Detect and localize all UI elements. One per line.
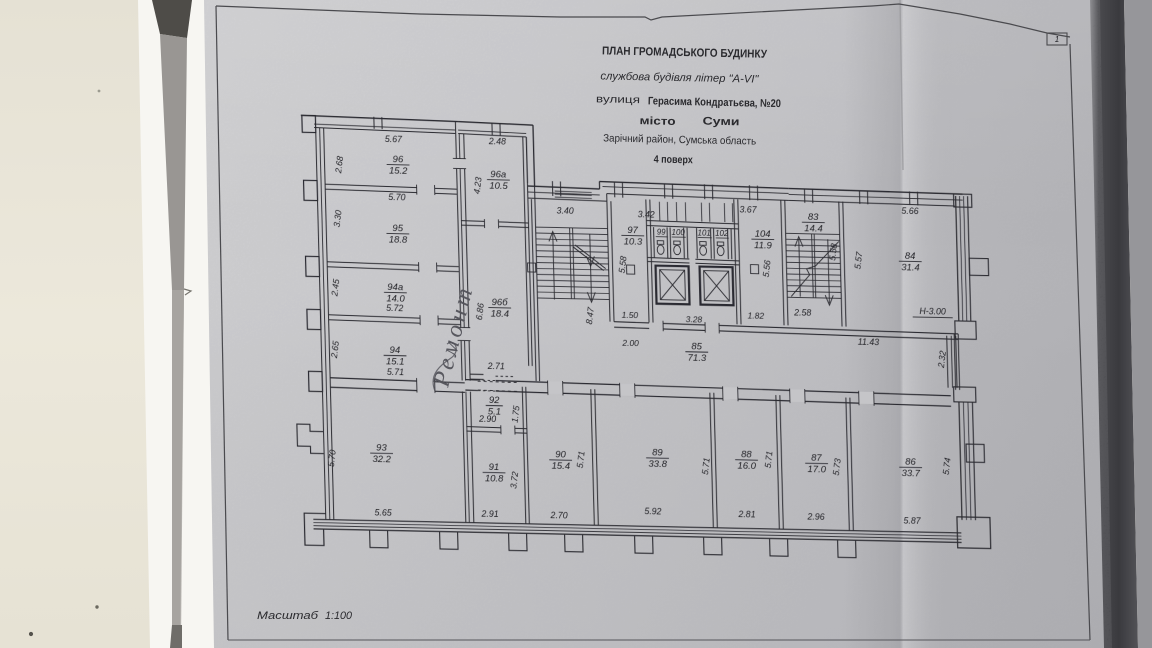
svg-text:Масштаб: Масштаб <box>257 610 319 622</box>
svg-text:вулиця: вулиця <box>596 93 640 106</box>
svg-text:5.56: 5.56 <box>761 259 773 278</box>
svg-text:2.70: 2.70 <box>549 510 567 520</box>
svg-text:90: 90 <box>555 449 567 460</box>
svg-text:2.32: 2.32 <box>936 350 948 370</box>
svg-text:91: 91 <box>488 462 499 473</box>
svg-text:2.45: 2.45 <box>329 278 341 298</box>
svg-text:1.75: 1.75 <box>510 405 522 424</box>
svg-text:96а: 96а <box>490 169 506 180</box>
svg-text:96: 96 <box>393 154 405 165</box>
svg-text:2.00: 2.00 <box>621 338 639 348</box>
svg-text:2.90: 2.90 <box>478 414 496 424</box>
svg-text:5.70: 5.70 <box>388 192 405 202</box>
svg-text:10.5: 10.5 <box>489 181 508 192</box>
svg-text:3.28: 3.28 <box>686 314 703 324</box>
svg-text:5.70: 5.70 <box>326 449 338 468</box>
svg-text:5.73: 5.73 <box>831 458 843 477</box>
svg-text:32.2: 32.2 <box>372 454 391 465</box>
svg-text:31.4: 31.4 <box>901 262 920 273</box>
svg-text:94а: 94а <box>387 282 403 293</box>
svg-text:5.87: 5.87 <box>903 516 921 526</box>
svg-text:101: 101 <box>697 229 710 238</box>
svg-text:3.72: 3.72 <box>508 471 520 490</box>
svg-text:11.9: 11.9 <box>754 240 773 251</box>
svg-text:2.71: 2.71 <box>487 361 505 371</box>
svg-text:5.71: 5.71 <box>700 457 712 476</box>
svg-text:2.81: 2.81 <box>737 509 755 519</box>
svg-text:Суми: Суми <box>702 115 739 128</box>
svg-text:99: 99 <box>657 228 667 237</box>
svg-text:11.43: 11.43 <box>858 337 880 347</box>
svg-text:83: 83 <box>808 212 820 223</box>
svg-text:2.48: 2.48 <box>488 136 506 146</box>
svg-text:1.82: 1.82 <box>747 311 764 321</box>
svg-text:87: 87 <box>811 453 823 464</box>
svg-text:3.30: 3.30 <box>332 209 344 228</box>
svg-text:88: 88 <box>741 449 753 460</box>
svg-text:2.58: 2.58 <box>793 307 811 317</box>
svg-text:5.71: 5.71 <box>387 367 404 377</box>
svg-text:5.67: 5.67 <box>385 134 403 144</box>
svg-text:89: 89 <box>652 447 664 458</box>
svg-text:2.68: 2.68 <box>333 155 345 175</box>
svg-text:92: 92 <box>489 395 501 406</box>
svg-text:5.72: 5.72 <box>386 303 403 313</box>
svg-text:17.0: 17.0 <box>807 464 826 475</box>
svg-text:5.71: 5.71 <box>763 450 775 469</box>
svg-text:5.66: 5.66 <box>901 206 918 216</box>
svg-text:86: 86 <box>905 457 917 468</box>
svg-text:8.47: 8.47 <box>584 305 596 325</box>
svg-text:6.86: 6.86 <box>474 302 486 321</box>
svg-text:33.8: 33.8 <box>648 459 667 470</box>
svg-text:2.65: 2.65 <box>329 340 341 360</box>
svg-text:5.65: 5.65 <box>374 508 391 518</box>
svg-text:96б: 96б <box>492 297 509 308</box>
svg-text:10.3: 10.3 <box>624 236 643 247</box>
svg-text:15.2: 15.2 <box>389 166 408 177</box>
svg-text:5.74: 5.74 <box>941 457 953 476</box>
svg-text:Н-3.00: Н-3.00 <box>919 306 946 317</box>
svg-text:2.91: 2.91 <box>480 509 498 519</box>
svg-text:5.57: 5.57 <box>852 250 864 270</box>
svg-text:85: 85 <box>691 341 703 352</box>
svg-text:84: 84 <box>905 251 916 262</box>
svg-text:місто: місто <box>639 115 676 128</box>
svg-text:1:100: 1:100 <box>325 610 353 622</box>
svg-text:4 поверх: 4 поверх <box>654 153 693 166</box>
svg-text:14.4: 14.4 <box>804 223 823 234</box>
svg-text:15.4: 15.4 <box>551 461 570 472</box>
svg-text:1: 1 <box>1055 35 1059 44</box>
svg-text:1.50: 1.50 <box>621 310 638 320</box>
svg-text:10.8: 10.8 <box>485 473 504 484</box>
svg-text:5.92: 5.92 <box>644 506 661 516</box>
svg-text:102: 102 <box>715 229 729 238</box>
svg-text:2.96: 2.96 <box>806 512 824 522</box>
svg-text:33.7: 33.7 <box>901 468 920 479</box>
svg-text:3.67: 3.67 <box>739 204 757 214</box>
svg-text:5.71: 5.71 <box>575 450 587 469</box>
svg-text:18.8: 18.8 <box>389 235 408 246</box>
svg-text:3.40: 3.40 <box>556 206 573 216</box>
svg-text:93: 93 <box>376 443 388 454</box>
svg-text:104: 104 <box>755 229 771 240</box>
svg-text:97: 97 <box>627 225 639 236</box>
svg-text:4.23: 4.23 <box>472 176 484 195</box>
svg-text:94: 94 <box>389 345 400 356</box>
svg-text:16.0: 16.0 <box>737 461 756 472</box>
svg-text:95: 95 <box>392 223 404 234</box>
svg-text:71.3: 71.3 <box>688 353 707 364</box>
svg-text:18.4: 18.4 <box>491 309 510 320</box>
